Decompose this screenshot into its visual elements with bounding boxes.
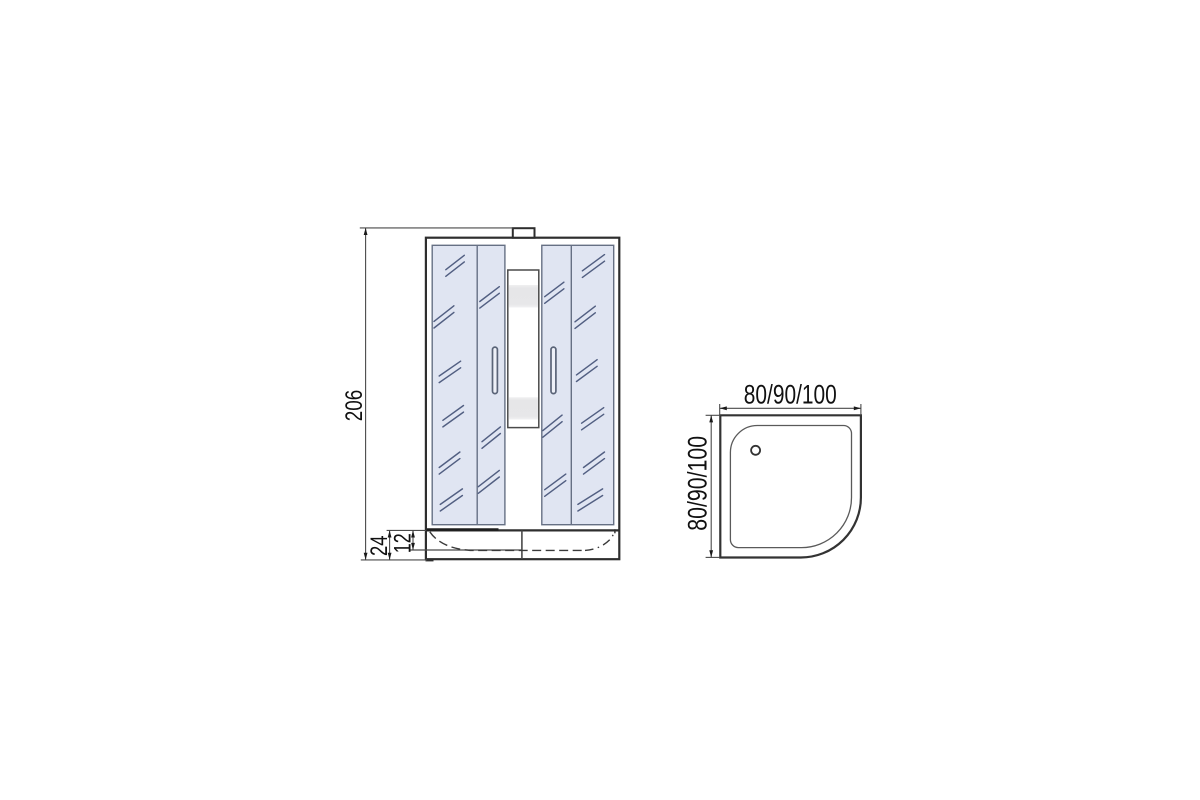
svg-text:12: 12 xyxy=(389,533,416,553)
svg-text:80/90/100: 80/90/100 xyxy=(744,380,837,410)
svg-text:206: 206 xyxy=(341,390,368,422)
svg-text:80/90/100: 80/90/100 xyxy=(683,436,713,531)
